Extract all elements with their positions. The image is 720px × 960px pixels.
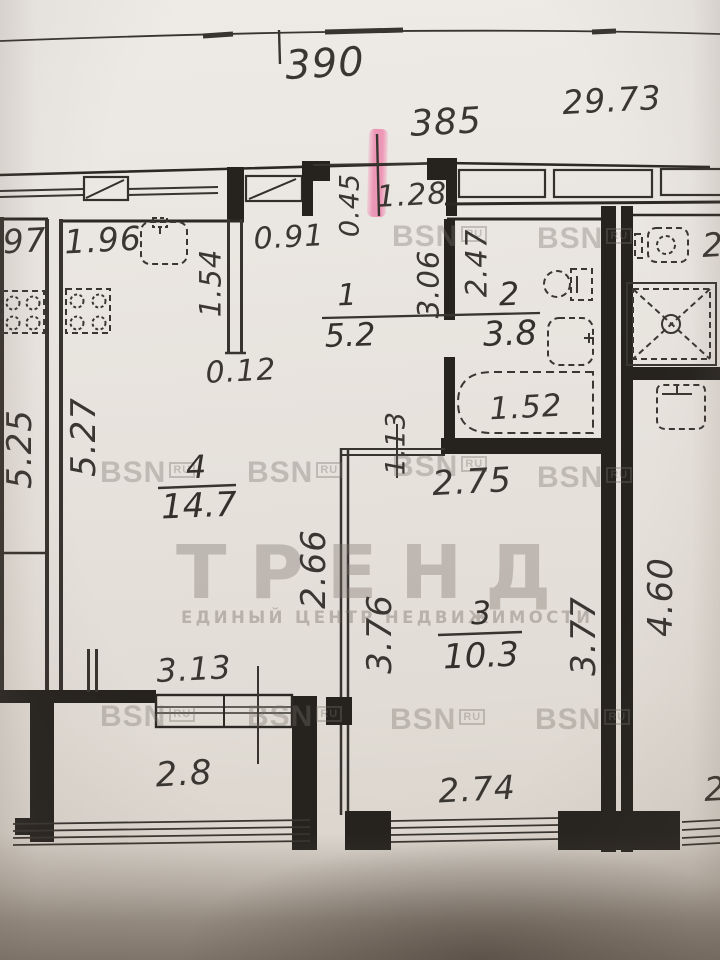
dimension-label: 2.66: [297, 529, 331, 609]
stove-icon: [2, 291, 44, 333]
room-number: 4: [185, 451, 206, 484]
toilet-icon: [657, 385, 705, 429]
room-number: 3: [470, 597, 491, 630]
floor-plan-photo: BSNRU BSNRU BSNRU BSNRU BSNRU BSNRU BSNR…: [0, 0, 720, 960]
dimension-label: 1.13: [383, 411, 410, 475]
dimension-label: 5.25: [3, 409, 37, 489]
washbasin-icon: [548, 318, 594, 365]
bsn-watermark: BSNRU: [537, 224, 632, 254]
dimension-label: 1.54: [197, 249, 226, 318]
room-area: 5.2: [324, 318, 376, 352]
bsn-watermark: BSNRU: [100, 702, 195, 732]
dimension-label: 29.73: [561, 81, 662, 119]
dimension-label: 0.12: [205, 355, 277, 389]
sink-icon: [635, 228, 688, 262]
dimension-label: 1.96: [63, 221, 142, 258]
bsn-watermark: BSNRU: [535, 705, 630, 735]
dimension-label: 2.47: [463, 229, 492, 298]
room-number: 1: [337, 281, 357, 312]
room-number: 2: [498, 278, 519, 311]
room-area: 3.8: [482, 316, 537, 352]
dimension-label: 0.91: [253, 221, 325, 255]
dimension-label: 1.52: [489, 391, 564, 426]
dimension-label: .97: [0, 223, 48, 259]
dimension-label: 0.45: [337, 173, 364, 237]
bsn-watermark: BSNRU: [537, 463, 632, 493]
dimension-label: 1.28: [376, 179, 448, 213]
dimension-label: 2.8: [155, 756, 214, 793]
dimension-label: 385: [409, 103, 483, 143]
bsn-watermark: BSNRU: [100, 458, 195, 488]
dimension-label: 3.06: [415, 250, 444, 319]
dimension-label: 2.75: [431, 463, 512, 501]
dimension-label: 2.74: [437, 770, 516, 807]
walls: [0, 206, 720, 852]
bsn-watermark: BSNRU: [390, 705, 485, 735]
dimension-label: 3.77: [567, 596, 601, 676]
bsn-watermark: BSNRU: [247, 458, 342, 488]
dimension-label: 4.60: [644, 557, 678, 637]
room-area: 14.7: [161, 488, 238, 525]
stove-icon: [66, 289, 110, 333]
bsn-watermark: BSNRU: [247, 702, 342, 732]
dimension-label: 3.76: [363, 594, 397, 674]
toilet-icon: [544, 269, 592, 300]
room-area: 10.3: [443, 638, 520, 675]
shower-icon: [627, 283, 716, 365]
dimension-label: 2: [703, 772, 720, 806]
dimension-label: 3.13: [156, 651, 233, 687]
dimension-label: 5.27: [67, 397, 101, 477]
dimension-label: 390: [284, 42, 365, 86]
kitchen-sink-icon: [141, 218, 187, 264]
dimension-label: 2: [701, 228, 720, 262]
